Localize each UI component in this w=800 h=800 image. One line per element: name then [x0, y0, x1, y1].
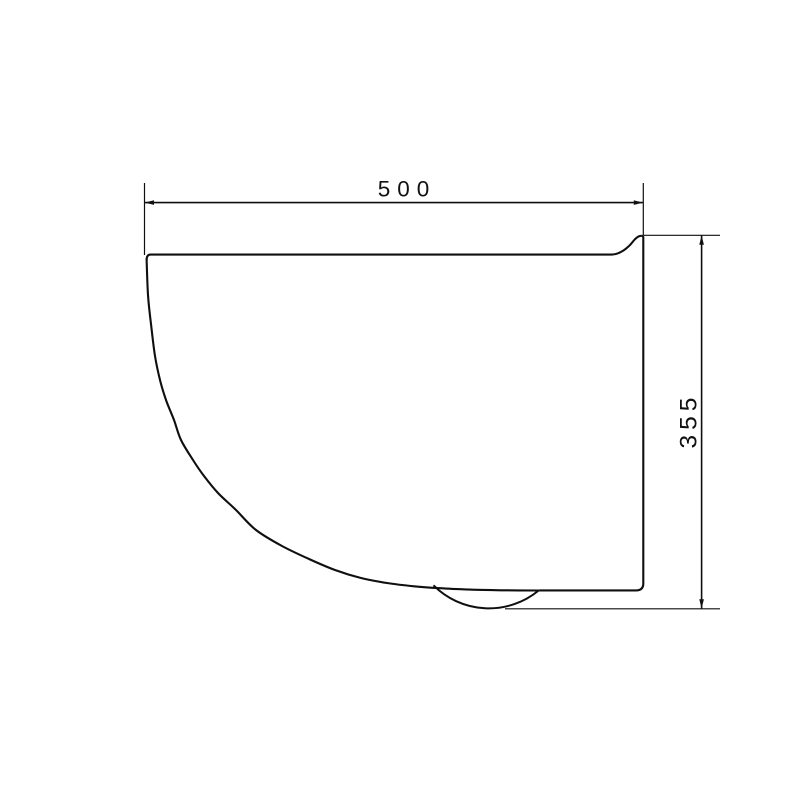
svg-text:500: 500: [378, 177, 437, 202]
svg-text:355: 355: [675, 393, 702, 449]
